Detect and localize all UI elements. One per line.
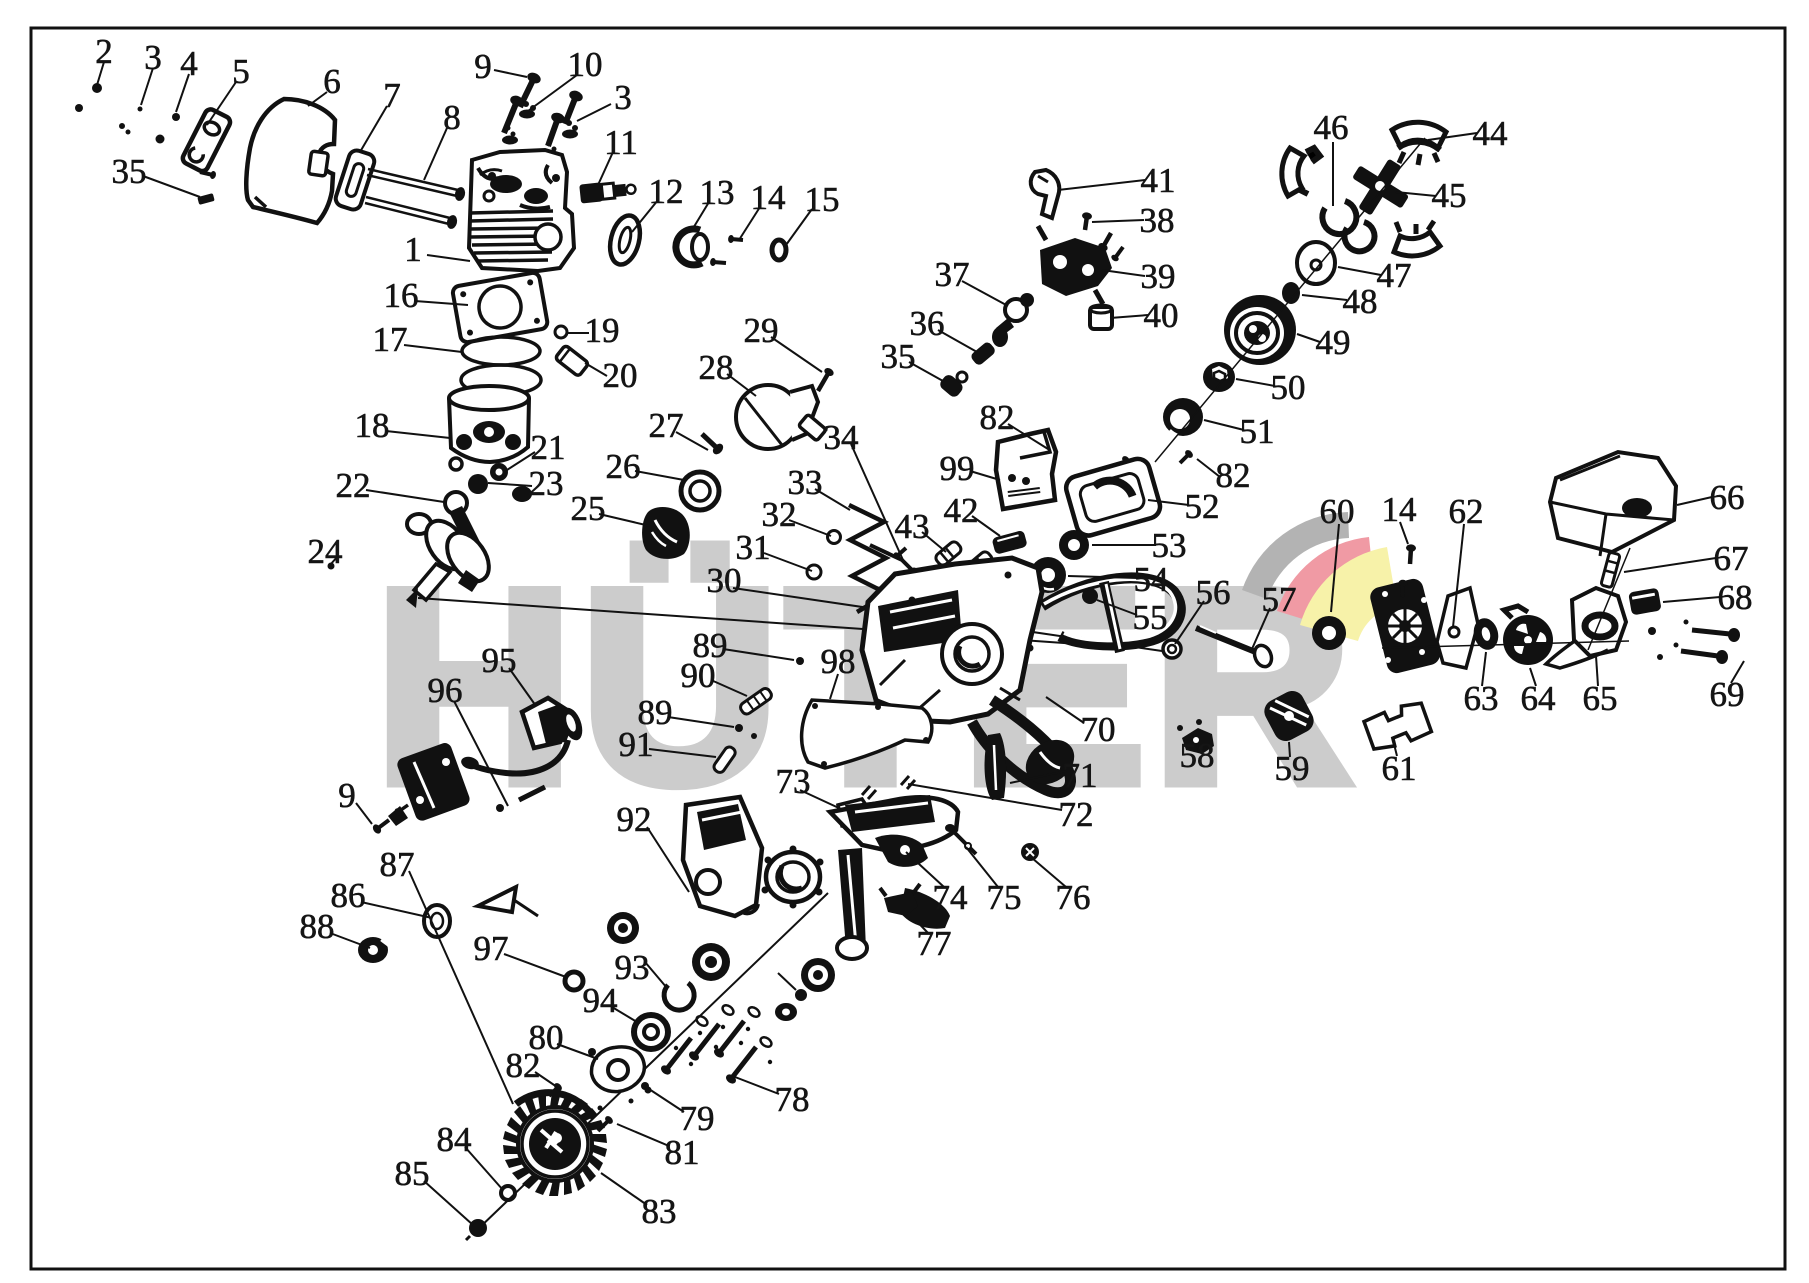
svg-text:69: 69 [1710, 675, 1745, 714]
svg-text:61: 61 [1382, 749, 1417, 788]
svg-text:29: 29 [744, 311, 779, 350]
svg-text:28: 28 [699, 348, 734, 387]
svg-text:44: 44 [1473, 114, 1508, 153]
svg-text:68: 68 [1718, 578, 1753, 617]
svg-text:55: 55 [1133, 598, 1168, 637]
svg-text:52: 52 [1185, 487, 1220, 526]
svg-text:47: 47 [1377, 256, 1412, 295]
svg-text:94: 94 [583, 981, 618, 1020]
svg-text:71: 71 [1063, 756, 1098, 795]
svg-text:62: 62 [1449, 492, 1484, 531]
svg-text:76: 76 [1056, 878, 1091, 917]
svg-text:41: 41 [1141, 161, 1176, 200]
svg-text:84: 84 [437, 1120, 472, 1159]
svg-text:22: 22 [336, 466, 371, 505]
svg-text:92: 92 [617, 800, 652, 839]
svg-text:63: 63 [1464, 679, 1499, 718]
svg-text:85: 85 [395, 1154, 430, 1193]
svg-text:16: 16 [384, 276, 419, 315]
svg-text:60: 60 [1320, 492, 1355, 531]
svg-text:87: 87 [380, 845, 415, 884]
svg-text:54: 54 [1134, 560, 1169, 599]
svg-text:23: 23 [529, 464, 564, 503]
svg-text:91: 91 [619, 725, 654, 764]
svg-text:74: 74 [933, 878, 968, 917]
svg-text:51: 51 [1240, 412, 1275, 451]
svg-text:18: 18 [355, 406, 390, 445]
svg-text:50: 50 [1271, 368, 1306, 407]
svg-text:6: 6 [323, 62, 341, 101]
svg-text:20: 20 [603, 356, 638, 395]
svg-text:90: 90 [681, 656, 716, 695]
svg-text:81: 81 [665, 1133, 700, 1172]
svg-text:75: 75 [987, 878, 1022, 917]
svg-text:3: 3 [614, 78, 632, 117]
svg-text:64: 64 [1521, 679, 1556, 718]
svg-text:42: 42 [944, 491, 979, 530]
svg-text:33: 33 [788, 463, 823, 502]
svg-text:82: 82 [980, 398, 1015, 437]
svg-text:39: 39 [1141, 257, 1176, 296]
svg-text:9: 9 [474, 47, 492, 86]
svg-text:13: 13 [700, 173, 735, 212]
svg-text:66: 66 [1710, 478, 1745, 517]
svg-text:14: 14 [1382, 490, 1417, 529]
svg-text:24: 24 [308, 532, 343, 571]
svg-text:88: 88 [300, 907, 335, 946]
svg-text:19: 19 [585, 311, 620, 350]
svg-text:82: 82 [1216, 456, 1251, 495]
svg-text:36: 36 [910, 304, 945, 343]
svg-text:26: 26 [606, 447, 641, 486]
svg-text:40: 40 [1144, 296, 1179, 335]
svg-text:95: 95 [482, 641, 517, 680]
svg-text:43: 43 [895, 507, 930, 546]
svg-text:73: 73 [776, 762, 811, 801]
svg-text:49: 49 [1316, 323, 1351, 362]
svg-text:83: 83 [642, 1192, 677, 1231]
svg-text:78: 78 [775, 1080, 810, 1119]
svg-text:38: 38 [1140, 201, 1175, 240]
svg-text:99: 99 [940, 449, 975, 488]
svg-text:17: 17 [373, 320, 408, 359]
svg-text:77: 77 [917, 924, 952, 963]
svg-text:97: 97 [474, 929, 509, 968]
svg-text:21: 21 [531, 428, 566, 467]
svg-text:48: 48 [1343, 282, 1378, 321]
svg-text:58: 58 [1180, 736, 1215, 775]
svg-text:67: 67 [1714, 539, 1749, 578]
svg-text:59: 59 [1275, 749, 1310, 788]
svg-text:14: 14 [751, 178, 786, 217]
svg-text:86: 86 [331, 876, 366, 915]
svg-text:9: 9 [338, 776, 356, 815]
svg-text:82: 82 [506, 1046, 541, 1085]
svg-text:70: 70 [1081, 710, 1116, 749]
svg-text:4: 4 [180, 44, 198, 83]
svg-text:37: 37 [935, 255, 970, 294]
svg-text:11: 11 [604, 123, 638, 162]
svg-text:25: 25 [571, 489, 606, 528]
svg-text:45: 45 [1432, 176, 1467, 215]
svg-text:46: 46 [1314, 108, 1349, 147]
svg-text:72: 72 [1059, 795, 1094, 834]
svg-text:35: 35 [112, 152, 147, 191]
svg-text:1: 1 [404, 230, 422, 269]
svg-text:93: 93 [615, 948, 650, 987]
svg-text:65: 65 [1583, 679, 1618, 718]
svg-text:96: 96 [428, 671, 463, 710]
svg-text:27: 27 [649, 406, 684, 445]
